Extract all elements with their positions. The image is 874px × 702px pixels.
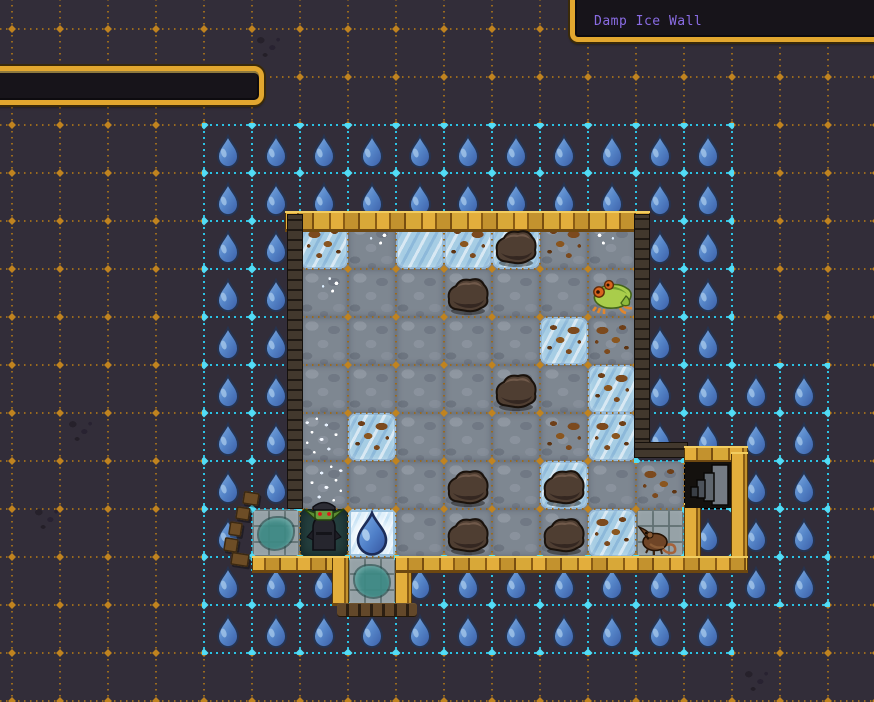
water-droplet-icon[interactable] bbox=[650, 184, 670, 215]
water-droplet-icon[interactable] bbox=[506, 184, 526, 215]
floor-tile-cobble[interactable] bbox=[588, 317, 636, 365]
water-droplet-icon[interactable] bbox=[650, 376, 670, 407]
water-droplet-icon[interactable] bbox=[650, 424, 670, 455]
water-droplet-icon[interactable] bbox=[602, 136, 622, 167]
floor-tile-cobble[interactable] bbox=[300, 461, 348, 509]
boulder[interactable] bbox=[444, 271, 492, 319]
floor-tile-cobble[interactable] bbox=[348, 221, 396, 269]
room-wall-top[interactable] bbox=[285, 211, 650, 232]
boulder[interactable] bbox=[444, 511, 492, 559]
water-droplet-icon[interactable] bbox=[314, 184, 334, 215]
water-droplet-icon[interactable] bbox=[362, 616, 382, 647]
water-droplet-icon[interactable] bbox=[698, 520, 718, 551]
water-droplet-icon[interactable] bbox=[362, 184, 382, 215]
dirt-overlay bbox=[540, 317, 588, 365]
stairs-wall-right[interactable] bbox=[731, 452, 748, 572]
rat-wall-right[interactable] bbox=[684, 503, 701, 561]
floor-tile-ice[interactable] bbox=[348, 413, 396, 461]
water-droplet-icon[interactable] bbox=[266, 136, 286, 167]
water-droplet-icon[interactable] bbox=[698, 280, 718, 311]
teal-overlay bbox=[259, 518, 293, 549]
stairs-tile[interactable] bbox=[684, 461, 732, 509]
floor-tile-cobble[interactable] bbox=[348, 365, 396, 413]
alcove-wall-left[interactable] bbox=[332, 556, 349, 606]
boulder[interactable] bbox=[540, 463, 588, 511]
goblin-character[interactable] bbox=[300, 501, 348, 549]
water-droplet-icon[interactable] bbox=[506, 136, 526, 167]
water-droplet-icon[interactable] bbox=[746, 376, 766, 407]
floor-tile-ice[interactable] bbox=[444, 221, 492, 269]
damp-grid bbox=[0, 0, 874, 702]
water-droplet-icon[interactable] bbox=[218, 424, 238, 455]
water-droplet-icon[interactable] bbox=[218, 184, 238, 215]
room-wall-bottom-left[interactable] bbox=[252, 556, 348, 573]
alcove-wall-right[interactable] bbox=[395, 556, 412, 606]
wall-extension-top[interactable] bbox=[634, 442, 688, 458]
water-droplet-icon[interactable] bbox=[218, 328, 238, 359]
background-grid bbox=[0, 0, 874, 702]
water-droplet-icon[interactable] bbox=[698, 136, 718, 167]
floor-tile-cobble[interactable] bbox=[492, 509, 540, 557]
water-droplet-icon[interactable] bbox=[602, 616, 622, 647]
boulder[interactable] bbox=[492, 367, 540, 415]
water-droplet-icon[interactable] bbox=[266, 376, 286, 407]
floor-tile-cobble[interactable] bbox=[444, 269, 492, 317]
speckle-overlay bbox=[300, 461, 348, 509]
water-droplet-icon[interactable] bbox=[554, 568, 574, 599]
floor-tile-cobble[interactable] bbox=[540, 221, 588, 269]
water-droplet-icon[interactable] bbox=[218, 472, 238, 503]
floor-tile-cobble[interactable] bbox=[444, 509, 492, 557]
water-droplet-icon[interactable] bbox=[458, 136, 478, 167]
floor-tile-cobble[interactable] bbox=[444, 413, 492, 461]
water-droplet-icon[interactable] bbox=[746, 424, 766, 455]
water-droplet-icon[interactable] bbox=[314, 568, 334, 599]
floor-tile-cobble[interactable] bbox=[300, 413, 348, 461]
room-wall-left[interactable] bbox=[287, 214, 303, 509]
floor-tile-cobble[interactable] bbox=[300, 269, 348, 317]
water-droplet-icon[interactable] bbox=[266, 184, 286, 215]
water-droplet-icon[interactable] bbox=[698, 616, 718, 647]
frog-creature[interactable] bbox=[588, 272, 636, 320]
floor-tile-cobble[interactable] bbox=[588, 221, 636, 269]
floor-tile-cobble[interactable] bbox=[396, 509, 444, 557]
dirt-overlay bbox=[348, 413, 396, 461]
floor-tile-ice[interactable] bbox=[396, 221, 444, 269]
dirt-overlay bbox=[540, 413, 588, 461]
grid-and-droplets-layer bbox=[0, 0, 874, 702]
floor-tile-ice[interactable] bbox=[588, 509, 636, 557]
water-droplet-icon[interactable] bbox=[458, 184, 478, 215]
alcove-tile-left[interactable] bbox=[252, 509, 300, 557]
water-droplet-icon[interactable] bbox=[218, 136, 238, 167]
teal-overlay bbox=[355, 566, 389, 597]
floor-tile-cobble[interactable] bbox=[348, 269, 396, 317]
water-droplet-icon[interactable] bbox=[746, 568, 766, 599]
water-droplet-icon[interactable] bbox=[410, 184, 430, 215]
water-droplet-icon[interactable] bbox=[266, 568, 286, 599]
water-droplet-icon[interactable] bbox=[314, 616, 334, 647]
water-droplet-icon[interactable] bbox=[554, 136, 574, 167]
floor-tile-cobble[interactable] bbox=[396, 317, 444, 365]
water-droplet-icon[interactable] bbox=[458, 616, 478, 647]
water-droplet-icon[interactable] bbox=[218, 232, 238, 263]
dirt-overlay bbox=[444, 221, 492, 269]
water-droplet-icon[interactable] bbox=[266, 472, 286, 503]
water-droplet-icon[interactable] bbox=[410, 136, 430, 167]
dirt-overlay bbox=[636, 461, 684, 509]
water-droplet-icon[interactable] bbox=[266, 616, 286, 647]
water-droplet-icon[interactable] bbox=[602, 184, 622, 215]
water-droplet-icon[interactable] bbox=[650, 568, 670, 599]
floor-tile-cobble[interactable] bbox=[300, 365, 348, 413]
floor-tile-cobble[interactable] bbox=[540, 269, 588, 317]
floor-tile-darkfloor[interactable] bbox=[300, 509, 348, 557]
floor-tile-cobble[interactable] bbox=[300, 317, 348, 365]
dirt-overlay bbox=[300, 221, 348, 269]
rat-tile[interactable] bbox=[636, 509, 684, 557]
water-droplet-icon[interactable] bbox=[794, 376, 814, 407]
paw-smudge-decal bbox=[742, 16, 778, 48]
water-droplet-icon[interactable] bbox=[218, 568, 238, 599]
floor-tile-cobble[interactable] bbox=[444, 461, 492, 509]
room-wall-right[interactable] bbox=[634, 214, 650, 448]
floor-tile-cobble[interactable] bbox=[588, 269, 636, 317]
boulder[interactable] bbox=[492, 223, 540, 271]
wall-rubble bbox=[223, 537, 239, 553]
floor-tile-cobble[interactable] bbox=[396, 461, 444, 509]
paw-smudge-decal bbox=[738, 664, 774, 696]
floor-tile-ice[interactable] bbox=[300, 221, 348, 269]
paw-smudge-decal bbox=[62, 414, 98, 446]
floor-tile-cobble[interactable] bbox=[396, 413, 444, 461]
water-droplet-icon[interactable] bbox=[218, 520, 238, 551]
water-droplet-icon[interactable] bbox=[410, 616, 430, 647]
water-droplet-icon[interactable] bbox=[746, 472, 766, 503]
floor-tile-cobble[interactable] bbox=[540, 365, 588, 413]
water-droplet-icon[interactable] bbox=[746, 520, 766, 551]
water-droplet-icon[interactable] bbox=[698, 232, 718, 263]
entity-layer bbox=[0, 0, 874, 702]
wall-rubble bbox=[235, 506, 251, 521]
floor-tile-cobble[interactable] bbox=[348, 317, 396, 365]
room-floor-base bbox=[300, 229, 636, 557]
water-droplet-icon[interactable] bbox=[650, 232, 670, 263]
dirt-overlay bbox=[588, 509, 636, 557]
floor-tile-ice[interactable] bbox=[588, 365, 636, 413]
floor-tile-cobble[interactable] bbox=[492, 461, 540, 509]
ui-layer: Damp Ice Wall bbox=[0, 0, 874, 702]
water-droplet-item[interactable] bbox=[348, 509, 396, 557]
water-droplet-icon[interactable] bbox=[698, 376, 718, 407]
tooltip-text: Damp Ice Wall bbox=[594, 14, 702, 29]
dirt-overlay bbox=[588, 317, 636, 365]
floor-tile-cobble[interactable] bbox=[540, 509, 588, 557]
water-droplet-icon[interactable] bbox=[266, 232, 286, 263]
water-droplet-icon[interactable] bbox=[698, 424, 718, 455]
floor-tile-cobble[interactable] bbox=[492, 269, 540, 317]
floor-tile-cobble[interactable] bbox=[588, 461, 636, 509]
water-droplet-icon[interactable] bbox=[650, 136, 670, 167]
room-wall-bottom-right[interactable] bbox=[395, 556, 748, 573]
water-droplet-icon[interactable] bbox=[314, 136, 334, 167]
floor-tile-ice[interactable] bbox=[540, 317, 588, 365]
dirt-overlay bbox=[588, 413, 636, 461]
water-droplet-icon[interactable] bbox=[266, 424, 286, 455]
water-droplet-icon[interactable] bbox=[506, 616, 526, 647]
floor-tile-icebright[interactable] bbox=[348, 509, 396, 557]
stairs-down[interactable] bbox=[684, 461, 732, 509]
paw-smudge-decal bbox=[28, 502, 64, 534]
water-droplet-icon[interactable] bbox=[218, 280, 238, 311]
boulder[interactable] bbox=[540, 511, 588, 559]
water-droplet-icon[interactable] bbox=[458, 568, 478, 599]
floor-tile-cobble[interactable] bbox=[540, 413, 588, 461]
water-droplet-icon[interactable] bbox=[602, 568, 622, 599]
sparkle-overlay bbox=[348, 221, 396, 269]
floor-tile-cobble[interactable] bbox=[444, 317, 492, 365]
message-panel bbox=[0, 66, 264, 105]
water-droplet-icon[interactable] bbox=[794, 568, 814, 599]
water-droplet-icon[interactable] bbox=[554, 616, 574, 647]
water-droplet-icon[interactable] bbox=[266, 280, 286, 311]
floor-tile-cobble[interactable] bbox=[492, 413, 540, 461]
wall-layer bbox=[0, 0, 874, 702]
water-droplet-icon[interactable] bbox=[698, 184, 718, 215]
water-droplet-icon[interactable] bbox=[218, 376, 238, 407]
water-droplet-icon[interactable] bbox=[218, 616, 238, 647]
dirt-overlay bbox=[540, 221, 588, 269]
floor-tile-cobble[interactable] bbox=[492, 317, 540, 365]
game-viewport: Damp Ice Wall bbox=[0, 0, 874, 702]
sparkle-overlay bbox=[300, 269, 348, 317]
boulder[interactable] bbox=[444, 463, 492, 511]
wall-rubble bbox=[242, 491, 260, 506]
rat-creature[interactable] bbox=[636, 515, 684, 563]
water-droplet-icon[interactable] bbox=[794, 520, 814, 551]
water-droplet-icon[interactable] bbox=[794, 472, 814, 503]
water-droplet-icon[interactable] bbox=[362, 136, 382, 167]
floor-tile-cobble[interactable] bbox=[348, 461, 396, 509]
speckle-overlay bbox=[300, 413, 348, 461]
dirt-overlay bbox=[588, 365, 636, 413]
floor-layer bbox=[0, 0, 874, 702]
floor-tile-ice[interactable] bbox=[540, 461, 588, 509]
water-droplet-icon[interactable] bbox=[506, 568, 526, 599]
water-droplet-icon[interactable] bbox=[650, 328, 670, 359]
water-droplet-icon[interactable] bbox=[410, 568, 430, 599]
tooltip: Damp Ice Wall bbox=[570, 0, 874, 42]
floor-tile-cobble[interactable] bbox=[636, 461, 684, 509]
alcove-tile-bottom[interactable] bbox=[348, 557, 396, 605]
wall-rubble bbox=[230, 552, 250, 568]
floor-tile-ice[interactable] bbox=[588, 413, 636, 461]
water-droplet-icon[interactable] bbox=[554, 184, 574, 215]
floor-tile-cobble[interactable] bbox=[492, 365, 540, 413]
wall-rubble bbox=[228, 521, 243, 537]
water-droplet-icon[interactable] bbox=[698, 568, 718, 599]
water-droplet-icon[interactable] bbox=[266, 328, 286, 359]
water-droplet-icon[interactable] bbox=[650, 616, 670, 647]
floor-tile-cobble[interactable] bbox=[444, 365, 492, 413]
stairs-wall-top[interactable] bbox=[684, 446, 748, 463]
floor-tile-ice[interactable] bbox=[492, 221, 540, 269]
floor-tile-cobble[interactable] bbox=[396, 365, 444, 413]
floor-tile-cobble[interactable] bbox=[396, 269, 444, 317]
water-droplet-icon[interactable] bbox=[650, 280, 670, 311]
alcove-wall-ruined[interactable] bbox=[337, 603, 417, 617]
water-droplet-icon[interactable] bbox=[794, 424, 814, 455]
water-droplet-icon[interactable] bbox=[698, 328, 718, 359]
paw-smudge-decal bbox=[250, 30, 286, 62]
sparkle-overlay bbox=[588, 221, 636, 269]
